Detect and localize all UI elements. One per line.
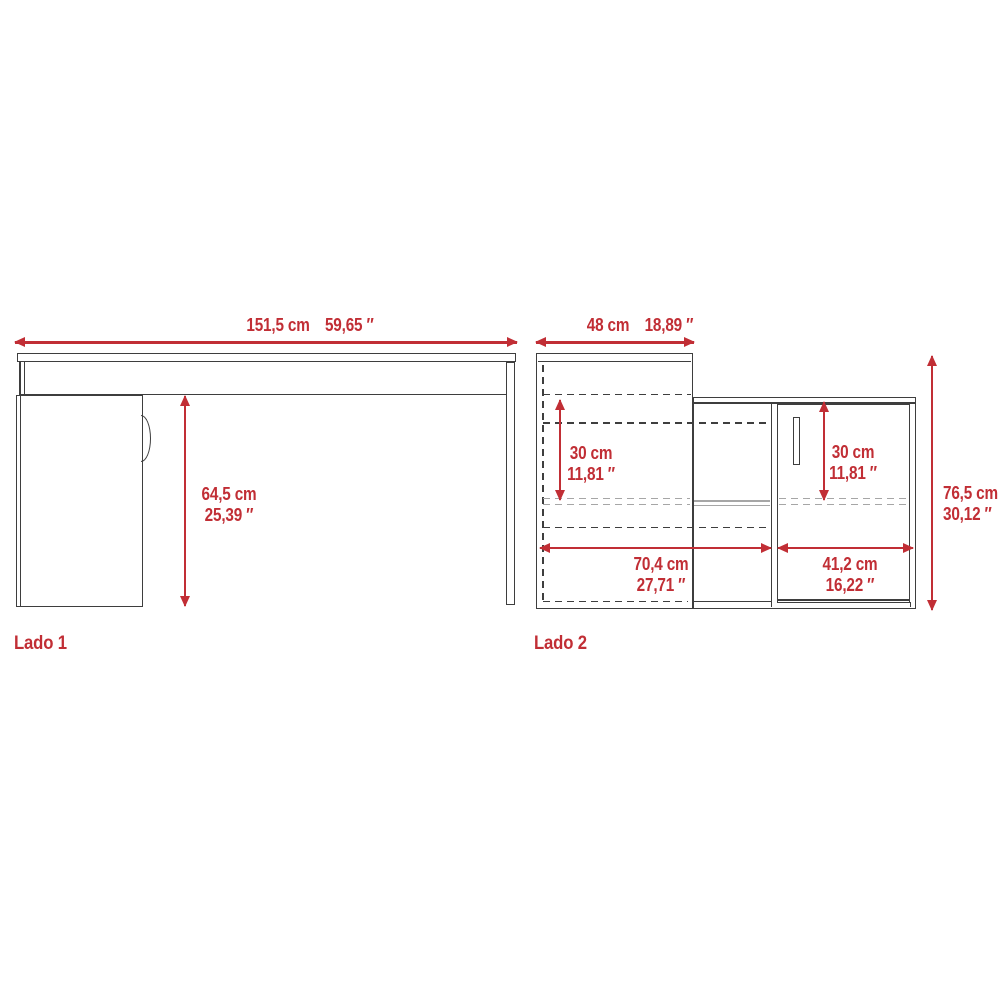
lado2-door-opening-cm: 30 cm [832, 442, 875, 463]
desk-left-panel-line [24, 362, 26, 395]
shelf-hidden-line [543, 498, 690, 500]
lado1-width-dimension-label: 151,5 cm 59,65 ″ [207, 315, 413, 336]
desk-pedestal-inner-line [20, 395, 22, 606]
lado2-desk-width-arrow [540, 547, 771, 550]
lado2-caption: Lado 2 [534, 632, 587, 655]
lado1-height-dimension-label: 64,5 cm 25,39 ″ [201, 484, 257, 526]
desk-left-panel-line [19, 362, 21, 395]
lado2-depth-cm: 48 cm [587, 315, 630, 336]
lado2-cabinet-width-arrow [778, 547, 913, 550]
door-handle [793, 417, 801, 466]
credenza-bottom-shelf-line [694, 601, 771, 603]
lado2-door-opening-in: 11,81 ″ [829, 463, 877, 484]
lado1-caption: Lado 1 [14, 632, 67, 655]
lado1-height-cm: 64,5 cm [202, 484, 257, 505]
lado2-desk-width-cm: 70,4 cm [634, 554, 689, 575]
lado1-width-arrow [15, 341, 517, 344]
lado2-door-opening-label: 30 cm 11,81 ″ [828, 442, 877, 484]
lado1-height-in: 25,39 ″ [205, 505, 254, 526]
lado2-depth-dimension-label: 48 cm 18,89 ″ [555, 315, 725, 336]
lado2-desk-width-label: 70,4 cm 27,71 ″ [610, 554, 712, 596]
cabinet-door-bottom-edge [777, 599, 910, 602]
lado1-height-arrow [184, 396, 187, 606]
lado2-left-opening-label: 30 cm 11,81 ″ [566, 443, 615, 485]
lado2-left-opening-arrow [559, 400, 562, 500]
lado2-height-in: 30,12 ″ [943, 504, 992, 525]
shelf-hidden-line [543, 504, 690, 506]
desk-right-leg [506, 362, 515, 605]
lado2-desk-width-in: 27,71 ″ [637, 575, 686, 596]
credenza-inner-right-line [910, 602, 912, 607]
desk-end-top-band-line [538, 361, 692, 363]
lado2-height-cm: 76,5 cm [943, 483, 998, 504]
lado2-depth-in: 18,89 ″ [645, 315, 694, 336]
hidden-edge-line [542, 365, 544, 601]
lado2-left-opening-in: 11,81 ″ [567, 464, 615, 485]
furniture-dimension-diagram: 151,5 cm 59,65 ″ 64,5 cm 25,39 ″ Lado 1 … [0, 0, 1000, 1000]
hidden-line [543, 601, 688, 603]
lado2-height-arrow [931, 356, 934, 610]
lado2-cabinet-width-label: 41,2 cm 16,22 ″ [799, 554, 901, 596]
lado1-width-in: 59,65 ″ [325, 315, 374, 336]
lado2-height-label: 76,5 cm 30,12 ″ [943, 483, 994, 525]
hidden-line [543, 394, 691, 396]
lado2-cabinet-width-in: 16,22 ″ [826, 575, 875, 596]
lado1-width-cm: 151,5 cm [246, 315, 309, 336]
credenza-divider [771, 403, 773, 607]
desk-tabletop [17, 353, 516, 362]
lado2-left-opening-cm: 30 cm [570, 443, 613, 464]
lado2-cabinet-width-cm: 41,2 cm [823, 554, 878, 575]
cabinet-handle-arc [141, 415, 151, 462]
lado2-depth-arrow [536, 341, 694, 344]
desk-pedestal-cabinet [16, 395, 143, 607]
lado2-door-opening-arrow [823, 402, 826, 500]
